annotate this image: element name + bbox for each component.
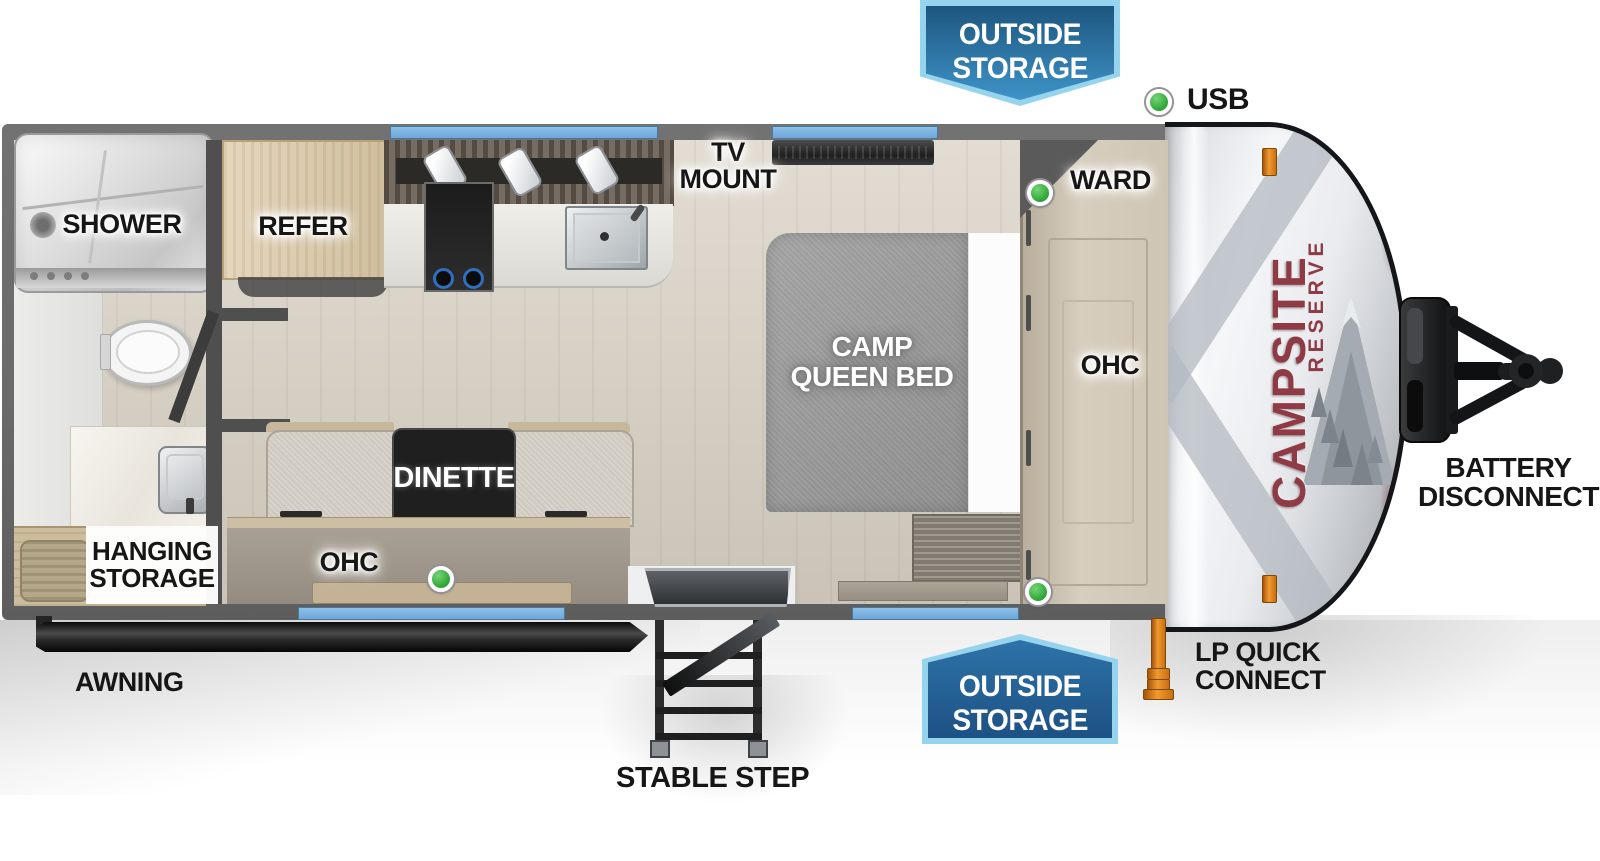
- stable-step-rung: [656, 707, 762, 714]
- label-bed-line1: CAMP: [782, 332, 962, 362]
- cabinet-handle: [1026, 295, 1031, 331]
- label-tv-mount-line2: MOUNT: [658, 166, 798, 193]
- window-dinette: [298, 607, 565, 620]
- label-tv-mount: TV MOUNT: [658, 139, 798, 193]
- toilet-hinge: [100, 334, 111, 370]
- label-hanging-storage-line2: STORAGE: [89, 565, 214, 592]
- cabinet-handle: [1026, 210, 1031, 246]
- rv-floorplan-canvas: SHOWER HANGING STORAGE REFER TV MOUNT CA…: [0, 0, 1600, 861]
- clearance-light-bottom: [1262, 575, 1277, 603]
- bathroom-faucet: [186, 498, 194, 514]
- label-ward: WARD: [1063, 166, 1158, 194]
- clearance-light-top: [1262, 148, 1277, 176]
- brand-series-text: RESERVE: [1305, 230, 1327, 380]
- awning-bar: [36, 622, 648, 652]
- stable-step-rung: [656, 733, 762, 740]
- stable-step-foot: [650, 740, 670, 758]
- cabinet-handle: [1026, 550, 1031, 580]
- label-lp-quick-connect: LP QUICK CONNECT: [1195, 638, 1326, 694]
- bed-foot-bench: [912, 514, 1030, 582]
- front-cap: CAMPSITE RESERVE: [1165, 122, 1408, 632]
- bed-floor-plank: [838, 581, 1008, 601]
- stable-step-foot: [748, 740, 768, 758]
- shower-ledge: [16, 268, 208, 288]
- outside-storage-banner-top: OUTSIDE STORAGE: [920, 0, 1120, 106]
- dinette-table: DINETTE: [392, 428, 516, 528]
- label-ohc-bedroom: OHC: [1077, 351, 1143, 379]
- label-shower: SHOWER: [52, 210, 192, 238]
- ground-shadow-front: [1110, 615, 1550, 745]
- hanging-storage-callout: HANGING STORAGE: [86, 526, 218, 604]
- lp-pipe: [1151, 618, 1166, 670]
- label-battery-line2: DISCONNECT: [1417, 482, 1600, 511]
- refrigerator-shadow: [238, 277, 388, 297]
- cap-red-accent-top: [1379, 147, 1401, 277]
- shower-jet: [64, 272, 72, 280]
- label-battery-line1: BATTERY: [1417, 453, 1600, 482]
- label-dinette: DINETTE: [393, 463, 514, 493]
- banner-top-line1: OUTSIDE: [959, 18, 1081, 52]
- shower-jet: [47, 272, 55, 280]
- label-bed-line2: QUEEN BED: [782, 362, 962, 392]
- range-burner: [433, 268, 454, 289]
- usb-indicator-dot-ward: [1027, 180, 1053, 206]
- usb-indicator-dot-legend: [1146, 89, 1172, 115]
- window-bedroom-top: [772, 126, 938, 139]
- label-hanging-storage-line1: HANGING: [92, 538, 212, 565]
- range-burner: [463, 268, 484, 289]
- banner-top-line2: STORAGE: [952, 52, 1088, 86]
- shower-jet: [81, 272, 89, 280]
- label-stable-step: STABLE STEP: [616, 763, 806, 793]
- label-tv-mount-line1: TV: [658, 139, 798, 166]
- label-ohc-dinette: OHC: [315, 548, 383, 576]
- window-bedroom-bottom: [852, 607, 1019, 620]
- label-battery-disconnect: BATTERY DISCONNECT: [1417, 453, 1600, 511]
- usb-indicator-dot-bed: [1025, 579, 1051, 605]
- banner-bottom-line2: STORAGE: [952, 704, 1088, 738]
- label-lp-line2: CONNECT: [1195, 666, 1326, 694]
- storage-pad: [20, 540, 90, 602]
- wardrobe-door-inset: [1062, 300, 1134, 524]
- label-awning: AWNING: [75, 668, 184, 696]
- bathroom-wall-stub-top: [222, 308, 288, 321]
- usb-indicator-dot-dinette: [428, 566, 454, 592]
- entry-door: [640, 568, 791, 607]
- kitchen-sink-drain: [600, 232, 609, 241]
- bathroom-sink-basin: [166, 454, 204, 500]
- toilet-seat: [116, 330, 180, 374]
- dinette-table-edge: [227, 517, 630, 528]
- label-usb: USB: [1187, 84, 1249, 115]
- hitch-assembly: [1392, 282, 1572, 460]
- tv-mount-ridges: [778, 146, 928, 159]
- label-lp-line1: LP QUICK: [1195, 638, 1326, 666]
- shower-jet: [30, 272, 38, 280]
- outside-storage-banner-bottom: OUTSIDE STORAGE: [922, 634, 1118, 744]
- refrigerator-cabinet: [222, 140, 386, 280]
- cabinet-handle: [1026, 430, 1031, 466]
- label-refer: REFER: [248, 212, 358, 240]
- lp-fitting: [1143, 689, 1174, 700]
- window-kitchen: [390, 126, 658, 139]
- banner-bottom-line1: OUTSIDE: [959, 670, 1081, 704]
- label-camp-queen-bed: CAMP QUEEN BED: [782, 332, 962, 392]
